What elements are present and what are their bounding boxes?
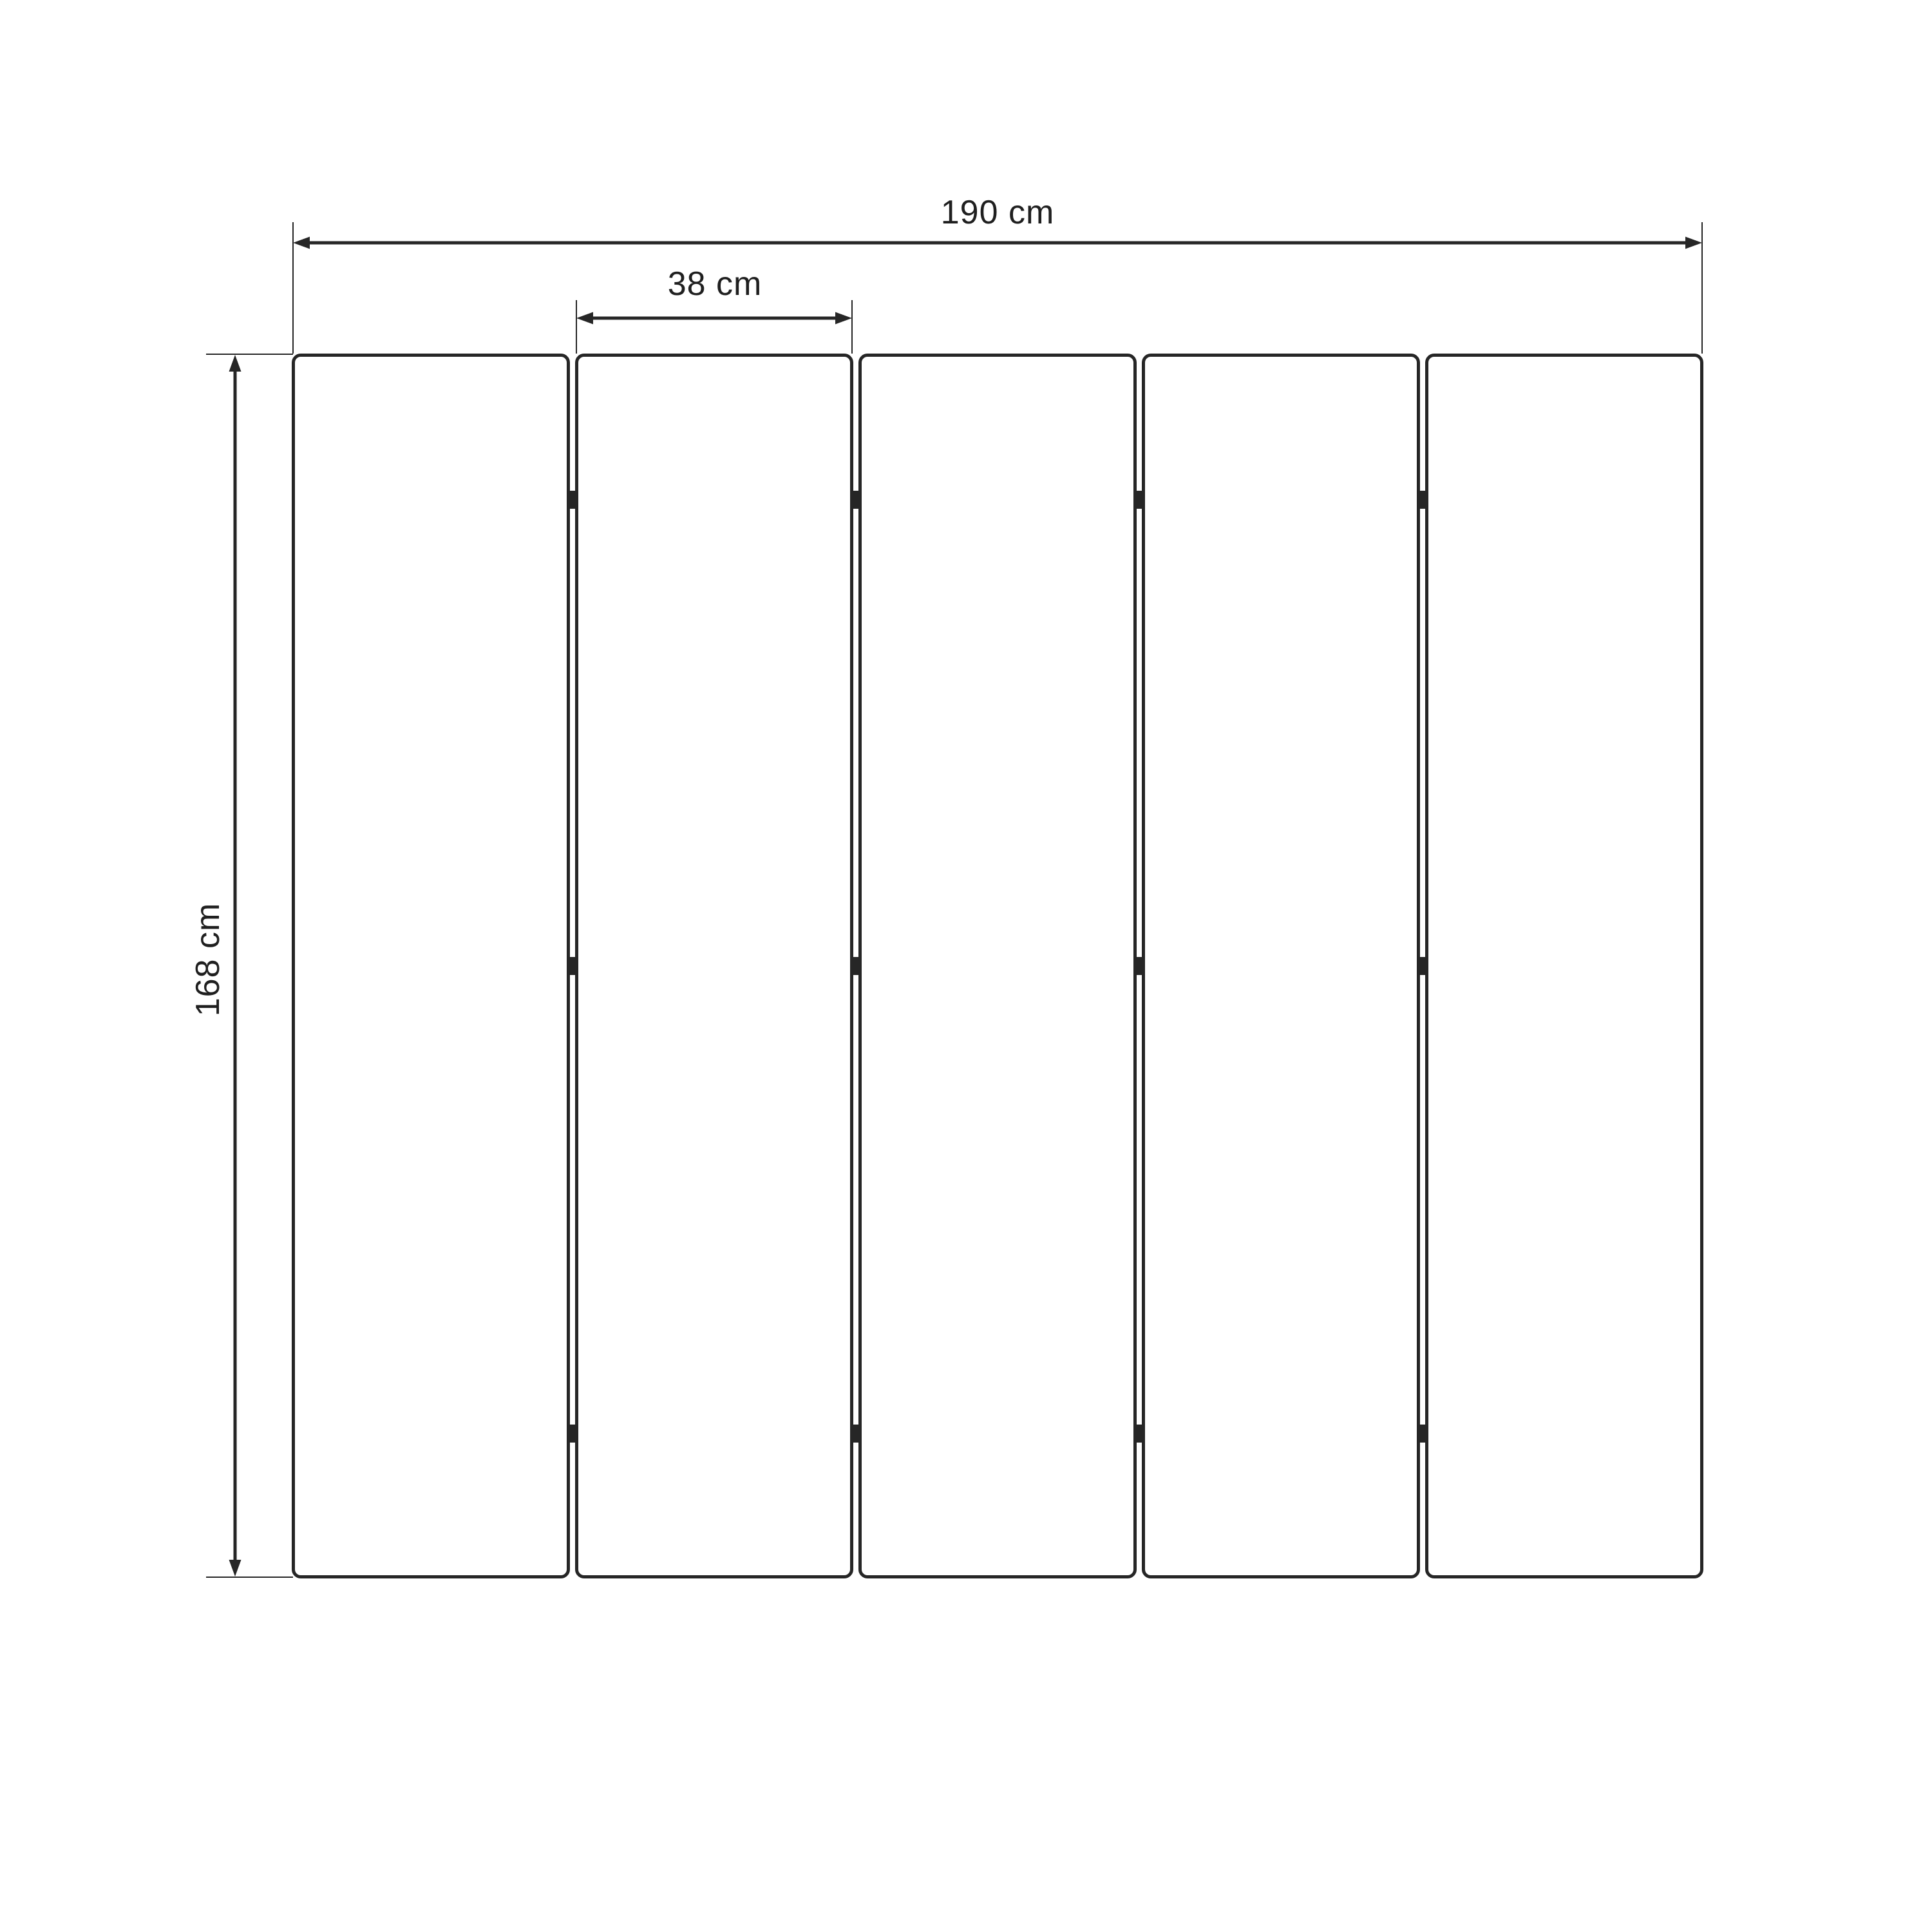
total-width-dimension-label: 190 cm xyxy=(941,196,1055,229)
hinge-joint3-3 xyxy=(1135,1425,1144,1443)
screen-panel-4 xyxy=(1142,354,1420,1578)
arrowhead-panel-width-left-icon xyxy=(576,312,593,325)
hinge-joint1-1 xyxy=(568,491,577,509)
arrowhead-total-width-left-icon xyxy=(293,237,310,249)
hinge-joint2-1 xyxy=(851,491,860,509)
hinge-joint1-2 xyxy=(568,957,577,975)
hinge-joint4-2 xyxy=(1418,957,1427,975)
diagram-canvas: 190 cm 38 cm 168 cm xyxy=(0,0,1932,1932)
hinge-joint3-2 xyxy=(1135,957,1144,975)
arrowhead-panel-width-right-icon xyxy=(835,312,852,325)
hinge-joint3-1 xyxy=(1135,491,1144,509)
height-dimension-label: 168 cm xyxy=(191,903,225,1017)
hinge-joint1-3 xyxy=(568,1425,577,1443)
hinge-joint4-3 xyxy=(1418,1425,1427,1443)
hinge-joint4-1 xyxy=(1418,491,1427,509)
panel-width-dimension-label: 38 cm xyxy=(668,267,762,301)
arrowhead-height-top-icon xyxy=(229,355,241,372)
screen-panel-2 xyxy=(575,354,853,1578)
screen-panel-5 xyxy=(1425,354,1703,1578)
hinge-joint2-3 xyxy=(851,1425,860,1443)
screen-panel-1 xyxy=(292,354,570,1578)
screen-panel-3 xyxy=(858,354,1137,1578)
hinge-joint2-2 xyxy=(851,957,860,975)
arrowhead-height-bottom-icon xyxy=(229,1560,241,1577)
arrowhead-total-width-right-icon xyxy=(1685,237,1702,249)
